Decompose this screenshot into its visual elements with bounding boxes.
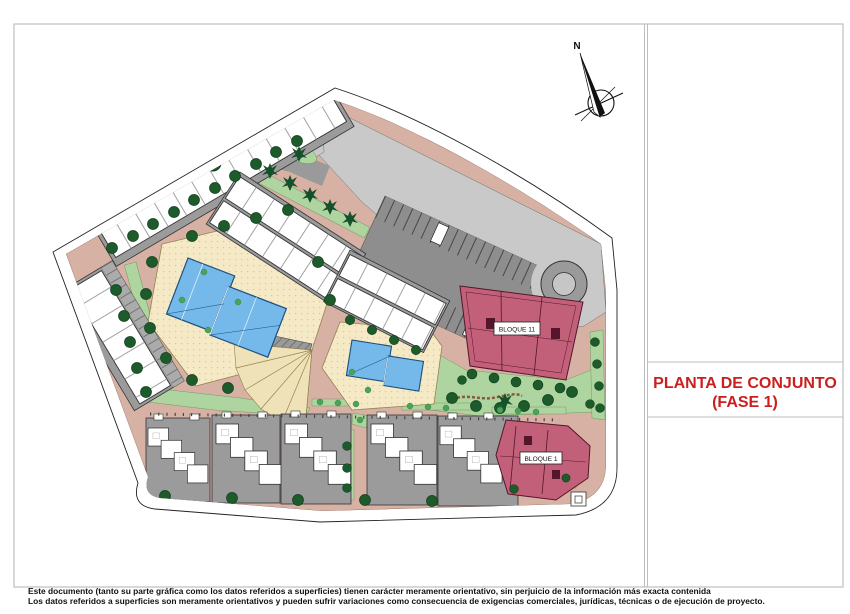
title-block: PLANTA DE CONJUNTO (FASE 1) bbox=[653, 375, 837, 411]
housing-clusters-south bbox=[146, 411, 518, 506]
disclaimer-line-2: Los datos referidos a superficies son me… bbox=[28, 596, 765, 606]
site-interior bbox=[62, 78, 606, 511]
svg-text:BLOQUE 1: BLOQUE 1 bbox=[525, 456, 558, 463]
disclaimer-line-1: Este documento (tanto su parte gráfica c… bbox=[28, 586, 711, 596]
svg-text:BLOQUE 11: BLOQUE 11 bbox=[499, 327, 535, 334]
plan-title: PLANTA DE CONJUNTO bbox=[653, 375, 837, 392]
north-arrow-icon: N bbox=[573, 41, 623, 121]
bloque-1-label: BLOQUE 1 bbox=[520, 452, 562, 464]
bloque-11-label: BLOQUE 11 bbox=[494, 322, 540, 335]
plan-phase: (FASE 1) bbox=[712, 394, 778, 411]
disclaimer: Este documento (tanto su parte gráfica c… bbox=[28, 586, 765, 606]
site-plan-svg: BLOQUE 11 BLOQUE 1 N PLANTA DE CONJUNTO … bbox=[0, 0, 850, 614]
utility-cabinet bbox=[571, 492, 586, 506]
drawing-sheet: BLOQUE 11 BLOQUE 1 N PLANTA DE CONJUNTO … bbox=[0, 0, 850, 614]
svg-text:N: N bbox=[573, 41, 580, 52]
